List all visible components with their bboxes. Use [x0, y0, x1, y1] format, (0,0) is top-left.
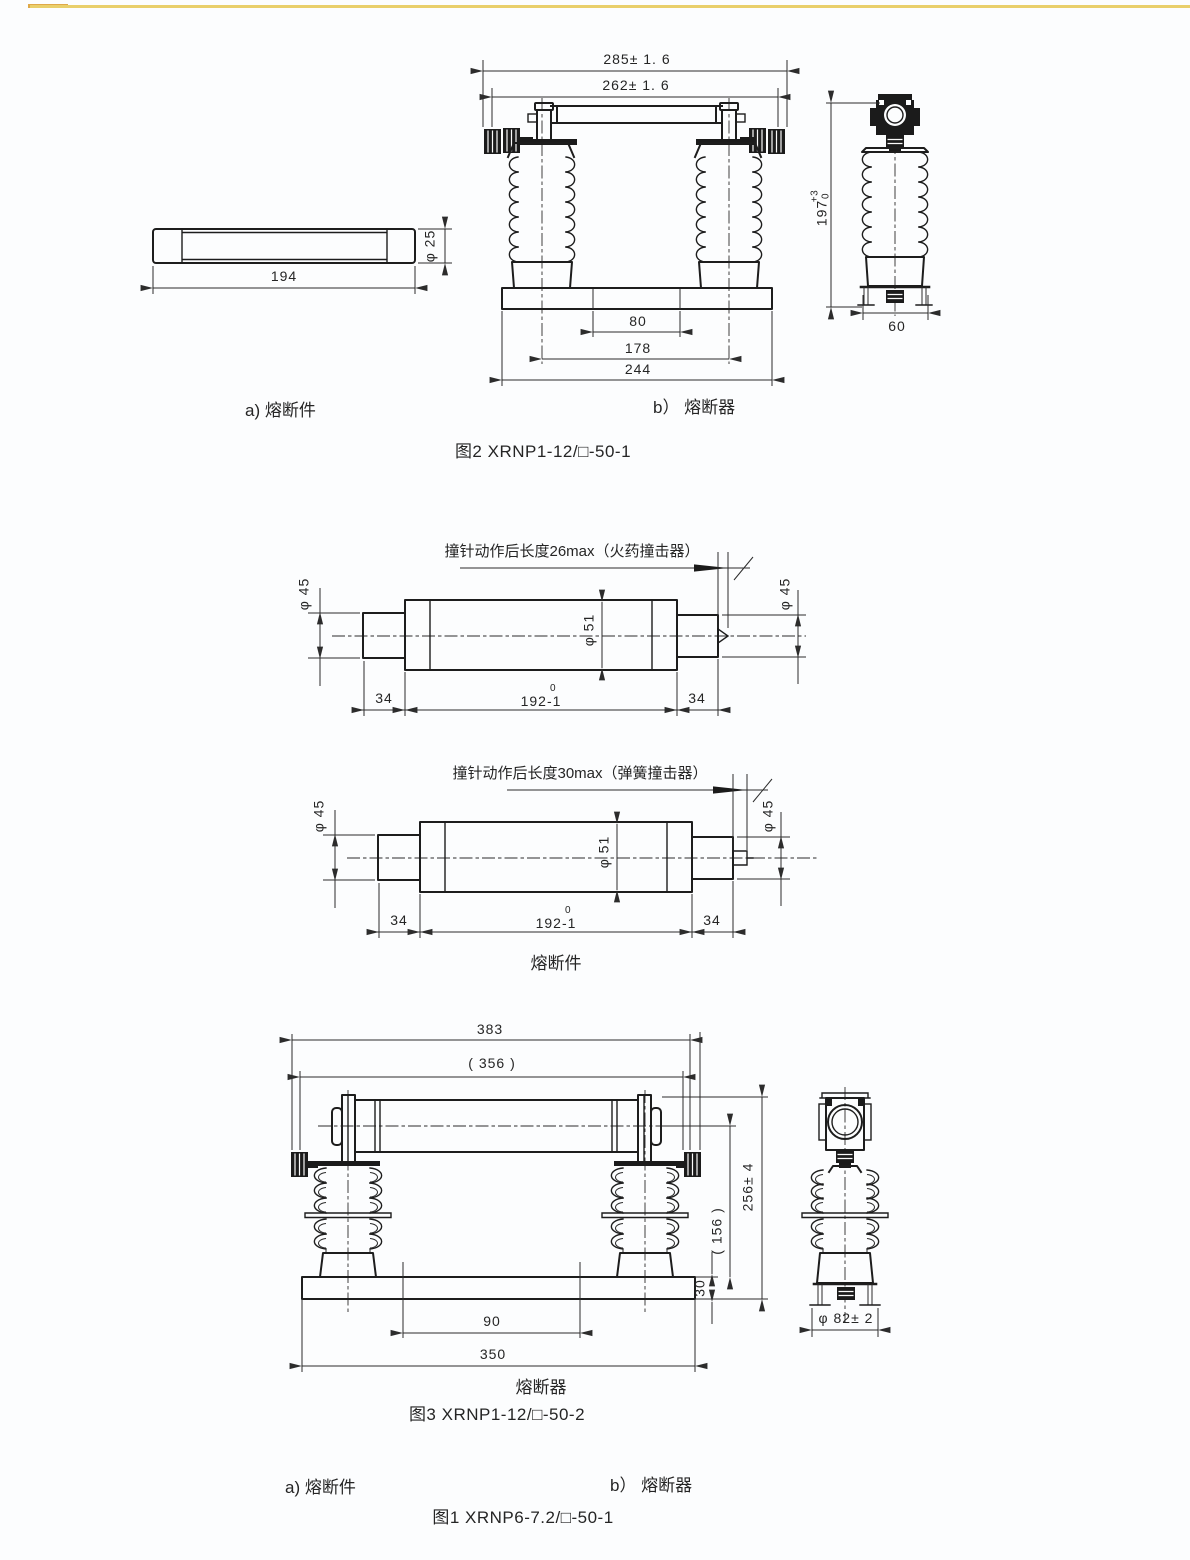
striker-dim-ticks — [718, 552, 753, 628]
figure3: 383 ( 356 ) 90 350 30 ( 156 ) 256± 4 — [291, 1021, 888, 1424]
dim-356: ( 356 ) — [468, 1055, 515, 1071]
fuse-body — [405, 600, 677, 670]
fig2-caption: 图2 XRNP1-12/□-50-1 — [455, 442, 631, 461]
tube-tab-right — [736, 114, 745, 122]
extension-lines — [292, 1032, 768, 1372]
striker-note-powder: 撞针动作后长度26max（火药撞击器） — [444, 542, 699, 560]
clamp-nut — [836, 1150, 854, 1163]
insulator-top-plate-right — [614, 1161, 676, 1166]
body-cap-rings — [445, 822, 667, 892]
clamp-ear-left — [870, 108, 876, 126]
fuse-link-section-label: 熔断件 — [531, 954, 582, 973]
clamp-ear-left — [819, 1104, 826, 1140]
end-ferrule-left — [363, 613, 405, 658]
dim-dia45-left: φ 45 — [296, 578, 312, 611]
drawing-canvas: 194 φ 25 — [0, 0, 1190, 1560]
top-rule-line — [30, 5, 1190, 8]
figure2: 194 φ 25 — [153, 51, 932, 461]
dim-262: 262± 1. 6 — [602, 77, 669, 93]
dim-dia51: φ 51 — [596, 836, 612, 869]
dim-34-left: 34 — [375, 690, 393, 706]
fig3-front-view: 383 ( 356 ) 90 350 30 ( 156 ) 256± 4 — [291, 1021, 768, 1372]
dim-34-right: 34 — [688, 690, 706, 706]
mounting-base-plate — [302, 1277, 695, 1299]
dim-256: 256± 4 — [740, 1163, 756, 1212]
clamp-ear-right — [864, 1104, 871, 1140]
dim-dia51: φ 51 — [581, 614, 597, 647]
insulator-flange — [802, 1213, 888, 1218]
clamp-nut — [886, 135, 904, 148]
fig2-label-b: b） 熔断器 — [653, 398, 735, 417]
clamp-corner-left — [826, 1098, 832, 1106]
end-ferrule-left — [378, 835, 420, 880]
dim-194: 194 — [271, 268, 297, 284]
extension-lines — [153, 229, 452, 294]
tube-tab-left — [528, 114, 537, 122]
dim-60: 60 — [888, 318, 906, 334]
striker-drawing-spring: 撞针动作后长度30max（弹簧撞击器） φ 45 φ 45 φ 51 34 0 … — [311, 764, 818, 938]
fig3-caption: 图3 XRNP1-12/□-50-2 — [409, 1405, 585, 1424]
fig2-label-a: a) 熔断件 — [245, 401, 316, 420]
terminal-bolt-right — [684, 1152, 701, 1177]
fig2-side-view: 197 +3 0 60 — [810, 94, 932, 334]
dim-350: 350 — [480, 1346, 506, 1362]
clamp-top-plate — [878, 94, 912, 100]
fig3-side-view: φ 82± 2 — [802, 1087, 888, 1337]
clamp-corner-right — [858, 1098, 864, 1106]
footer-label-b: b） 熔断器 — [610, 1476, 692, 1495]
dim-90: 90 — [483, 1313, 501, 1329]
dim-197-tol-zero: 0 — [821, 193, 832, 199]
base-bolt — [886, 290, 904, 303]
dim-192: 192-1 — [521, 693, 562, 709]
dim-dia45-left: φ 45 — [311, 800, 327, 833]
terminal-bolt-right-outer — [768, 129, 785, 154]
terminal-bolt-left-outer — [484, 129, 501, 154]
fig3-section-label: 熔断器 — [516, 1378, 567, 1397]
extension-lines — [483, 60, 787, 386]
striker-drawing-powder: 撞针动作后长度26max（火药撞击器） φ 45 φ 45 φ 51 34 0 … — [296, 542, 806, 716]
dim-34-left: 34 — [390, 912, 408, 928]
striker-dim-arrow — [694, 564, 728, 571]
scanned-standard-page: 194 φ 25 — [0, 0, 1190, 1560]
dim-34-right: 34 — [703, 912, 721, 928]
dim-dia45-right: φ 45 — [777, 578, 793, 611]
dim-285: 285± 1. 6 — [603, 51, 670, 67]
fig2-fuse-link-view: 194 φ 25 — [153, 229, 452, 294]
striker-dim-arrow — [713, 786, 747, 793]
dim-197: 197 — [814, 200, 830, 226]
hole-lines — [593, 289, 680, 309]
bolt-shaft-left — [308, 1161, 318, 1168]
fuse-body — [420, 822, 692, 892]
fig1-caption: 图1 XRNP6-7.2/□-50-1 — [432, 1508, 613, 1527]
dim-156: ( 156 ) — [709, 1207, 725, 1254]
clamp-notch-right — [906, 100, 911, 105]
base-bolt — [837, 1287, 855, 1300]
dim-197-tol-plus: +3 — [810, 190, 821, 202]
dim-244: 244 — [625, 361, 651, 377]
dim-383: 383 — [477, 1021, 503, 1037]
dim-80: 80 — [629, 313, 647, 329]
body-cap-rings — [430, 600, 652, 670]
dim-dia25: φ 25 — [422, 230, 438, 263]
terminal-bolt-left — [291, 1152, 308, 1177]
fig2-assembly-view: 285± 1. 6 262± 1. 6 80 178 244 — [483, 51, 787, 386]
fuse-tube — [551, 106, 722, 123]
striker-note-spring: 撞针动作后长度30max（弹簧撞击器） — [452, 764, 707, 782]
top-rule — [28, 4, 1190, 8]
footer: a) 熔断件 b） 熔断器 图1 XRNP6-7.2/□-50-1 — [285, 1476, 692, 1527]
footer-label-a: a) 熔断件 — [285, 1478, 356, 1497]
dim-30: 30 — [692, 1279, 708, 1297]
dim-178: 178 — [625, 340, 651, 356]
mounting-base-plate — [502, 288, 772, 309]
tube-hanger-left — [537, 110, 551, 142]
fuse-link-tube-outline — [153, 229, 415, 263]
bolt-shaft-right — [676, 1161, 684, 1168]
insulator-bases — [512, 262, 759, 288]
dim-dia45-right: φ 45 — [760, 800, 776, 833]
tube-end-terminal-right — [651, 1108, 661, 1145]
insulator-top-plate-left — [318, 1161, 380, 1166]
dim-dia82: φ 82± 2 — [819, 1310, 874, 1326]
tube-end-terminal-left — [332, 1108, 342, 1145]
insulator-collars — [508, 143, 761, 157]
fuse-link-caps — [182, 229, 387, 263]
dim-192: 192-1 — [536, 915, 577, 931]
clamp-ear-right — [914, 108, 920, 126]
